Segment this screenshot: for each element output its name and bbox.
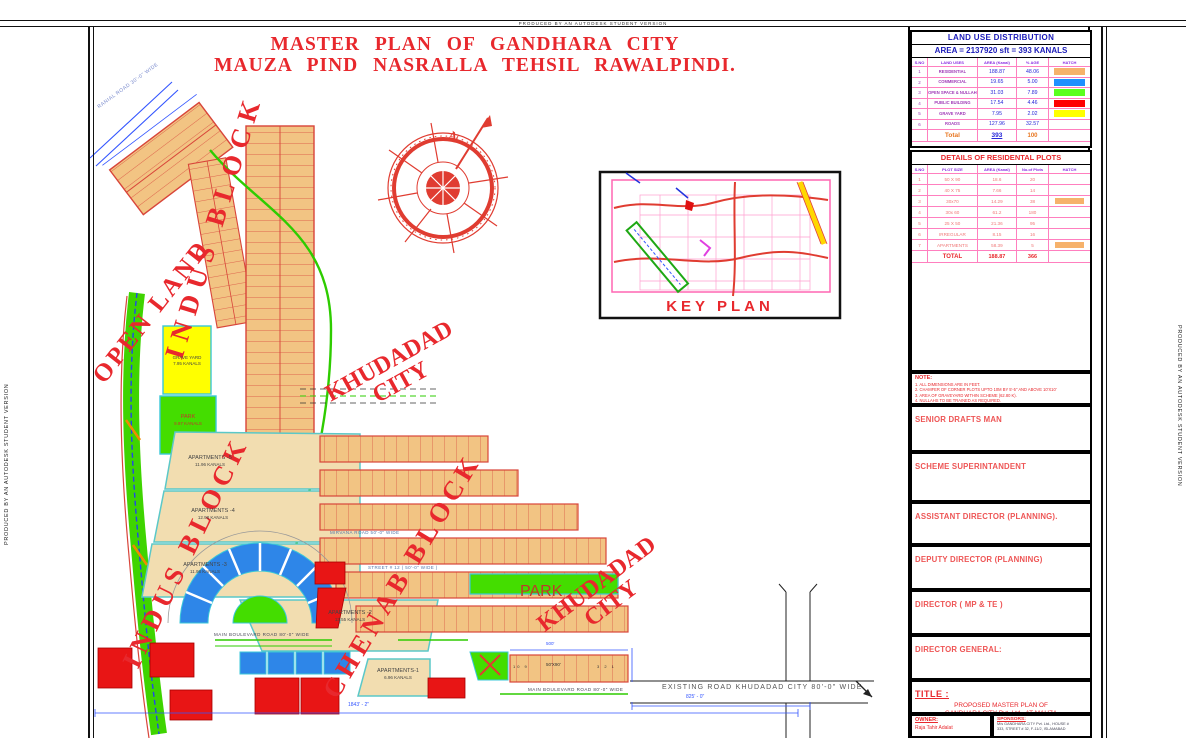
- plots-row: 7 APARTMENTS 58.39 5: [912, 240, 1090, 251]
- cell: COMMERCIAL: [928, 78, 978, 88]
- sheet-border-left-outer: [88, 27, 90, 738]
- plots-row: 3 30x70 14.29 38: [912, 196, 1090, 207]
- cell: 16: [1017, 229, 1049, 239]
- residential-plots-table: DETAILS OF RESIDENTAL PLOTS S.NO PLOT SI…: [910, 150, 1092, 372]
- autodesk-banner-right: PRODUCED BY AN AUTODESK STUDENT VERSION: [1176, 325, 1182, 486]
- cell: 48.06: [1017, 67, 1049, 77]
- cell: [1049, 207, 1090, 217]
- col-land-uses: LAND USES: [928, 58, 978, 66]
- indus-plot-column: [246, 126, 314, 482]
- cell: 3: [912, 196, 928, 206]
- cell: 17.54: [978, 99, 1017, 109]
- dimension-825: 825' - 0": [686, 694, 704, 700]
- land-use-header-row: S.NO LAND USES AREA (Kanal) % AGE HATCH: [912, 58, 1090, 67]
- apartments-4-name: APARTMENTS -4: [158, 508, 268, 515]
- cell: 58.39: [978, 240, 1017, 250]
- plot-size-label: 50'X90': [546, 662, 561, 667]
- owner-label: OWNER:: [915, 717, 987, 723]
- key-plan-label: KEY PLAN: [647, 298, 793, 315]
- plan-title-line1: MASTER PLAN OF GANDHARA CITY: [170, 34, 780, 55]
- cell: 180: [1017, 207, 1049, 217]
- cell: 188.87: [978, 251, 1017, 262]
- key-plan-inset: [600, 172, 840, 318]
- cell: 95: [1017, 218, 1049, 228]
- cell: [1049, 240, 1090, 250]
- apartments-3-area: 11.98 KANALS: [150, 569, 260, 575]
- cell: [1049, 99, 1090, 109]
- land-use-row: 5 GRAVE YARD 7.95 2.02: [912, 109, 1090, 120]
- cell: [1049, 109, 1090, 119]
- cell: PUBLIC BUILDING: [928, 99, 978, 109]
- sponsors-box: SPONSORS: M/s GANDHARA CITY Pvt. Ltd., H…: [992, 714, 1092, 738]
- plots-row: 2 40 X 75 7.66 14: [912, 185, 1090, 196]
- apartments-4-label: APARTMENTS -4 12.98 KANALS: [158, 508, 268, 521]
- sheet-border-right-inner: [1101, 27, 1103, 738]
- top-sheet-border: PRODUCED BY AN AUTODESK STUDENT VERSION: [0, 20, 1186, 27]
- plan-title-line2: MAUZA PIND NASRALLA TEHSIL RAWALPINDI.: [170, 55, 780, 76]
- cell: RESIDENTIAL: [928, 67, 978, 77]
- plots-row: 5 25 X 50 21.36 95: [912, 218, 1090, 229]
- cell: 31.03: [978, 88, 1017, 98]
- apartments-1-label: APARTMENTS-1 6.96 KANALS: [360, 668, 436, 681]
- dimension-1843: 1843' - 2": [348, 702, 369, 708]
- cell: 6: [912, 229, 928, 239]
- cell: OPEN SPACE & NULLAH: [928, 88, 978, 98]
- land-use-total-row: Total 393 100: [912, 130, 1090, 142]
- land-use-row: 1 RESIDENTIAL 188.87 48.06: [912, 67, 1090, 78]
- cell: TOTAL: [928, 251, 978, 262]
- cell: 40 X 75: [928, 185, 978, 195]
- land-use-row: 6 ROADS 127.96 32.57: [912, 120, 1090, 131]
- title-block: TITLE : PROPOSED MASTER PLAN OF GANDHARA…: [910, 680, 1092, 714]
- note-box: NOTE: 1. ALL DIMENSIONS ARE IN FEET. 2. …: [910, 372, 1092, 405]
- col-area: AREA (Kanal): [978, 58, 1017, 66]
- park-area: 9.97 KANALS: [162, 421, 214, 427]
- cell: 38: [1017, 196, 1049, 206]
- plots-row: 1 50 X 90 18.6 20: [912, 174, 1090, 185]
- cell: 127.96: [978, 120, 1017, 130]
- owner-box: OWNER: Raja Tahir Adalat: [910, 714, 992, 738]
- apartments-5-name: APARTMENTS -5: [155, 455, 265, 462]
- plan-title: MASTER PLAN OF GANDHARA CITY MAUZA PIND …: [170, 34, 780, 76]
- hatch-swatch: [1054, 121, 1086, 128]
- land-use-row: 2 COMMERCIAL 19.65 5.00: [912, 78, 1090, 89]
- cell: 7.95: [978, 109, 1017, 119]
- plots-title: DETAILS OF RESIDENTAL PLOTS: [912, 152, 1090, 165]
- hatch-swatch: [1055, 242, 1084, 248]
- cell: 6: [912, 120, 928, 130]
- grave-yard-area: 7.95 KANALS: [164, 361, 210, 367]
- cell: 32.57: [1017, 120, 1049, 130]
- hatch-swatch: [1054, 100, 1086, 107]
- cell: 100: [1017, 130, 1049, 141]
- hatch-swatch: [1054, 89, 1086, 96]
- apartments-2-label: APARTMENTS -2 13.55 KANALS: [295, 610, 405, 623]
- street-12-label: STREET # 12 ( 50'-0" WIDE ): [368, 565, 438, 570]
- cell: 2: [912, 185, 928, 195]
- apartments-3-label: APARTMENTS -3 11.98 KANALS: [150, 562, 260, 575]
- cell: 3: [912, 88, 928, 98]
- col-sno: S.NO: [912, 165, 928, 173]
- cell: 7: [912, 240, 928, 250]
- cell: GRAVE YARD: [928, 109, 978, 119]
- cell: 19.65: [978, 78, 1017, 88]
- hatch-swatch: [1055, 231, 1084, 237]
- owner-name: Raja Tahir Adalat: [915, 725, 987, 731]
- apartments-3-name: APARTMENTS -3: [150, 562, 260, 569]
- cell: [1049, 251, 1090, 262]
- cell: [1049, 196, 1090, 206]
- cell: [1049, 185, 1090, 195]
- cell: [1049, 78, 1090, 88]
- apartments-2-name: APARTMENTS -2: [295, 610, 405, 617]
- cell: 5.00: [1017, 78, 1049, 88]
- cell: 4: [912, 99, 928, 109]
- col-pct: % AGE: [1017, 58, 1049, 66]
- signature-label: SENIOR DRAFTS MAN: [915, 415, 1002, 424]
- plot-numbers-right: 3 2 1: [597, 664, 616, 669]
- cell: 20: [1017, 174, 1049, 184]
- title-block-panel: LAND USE DISTRIBUTION AREA = 2137920 sft…: [908, 27, 1090, 738]
- cell: 4.46: [1017, 99, 1049, 109]
- cell: ROADS: [928, 120, 978, 130]
- park-strip-label: PARK: [520, 582, 562, 602]
- signature-label: DIRECTOR GENERAL:: [915, 645, 1002, 654]
- col-count: No.of Plots: [1017, 165, 1049, 173]
- note-line: 4. NULLAHS TO BE TRAINED AS REQUIRED.: [915, 398, 1087, 404]
- cell: 14: [1017, 185, 1049, 195]
- col-plot-size: PLOT SIZE: [928, 165, 978, 173]
- cell: 393: [978, 130, 1017, 141]
- hatch-swatch: [1054, 110, 1086, 117]
- signature-box-deputy-director: DEPUTY DIRECTOR (PLANNING): [910, 545, 1092, 590]
- compass-rose: [378, 115, 508, 253]
- existing-roads: [630, 584, 874, 738]
- cell: 30x 60: [928, 207, 978, 217]
- signature-label: DEPUTY DIRECTOR (PLANNING): [915, 555, 1043, 564]
- cell: 5: [912, 109, 928, 119]
- main-boulevard-label-1: MAIN BOULEVARD ROAD 80'-0" WIDE: [214, 632, 309, 637]
- cell: 1: [912, 174, 928, 184]
- plots-row: 6 IRREGULAR 8.15 16: [912, 229, 1090, 240]
- hatch-swatch: [1055, 209, 1084, 215]
- title-block-label: TITLE :: [915, 689, 949, 699]
- cell: 4: [912, 207, 928, 217]
- autodesk-banner-left: PRODUCED BY AN AUTODESK STUDENT VERSION: [4, 384, 10, 545]
- park-label: PARK 9.97 KANALS: [162, 414, 214, 427]
- cell: 2.02: [1017, 109, 1049, 119]
- park-name: PARK: [162, 414, 214, 421]
- cell: [1049, 88, 1090, 98]
- col-hatch: HATCH: [1049, 165, 1090, 173]
- cell: 5: [912, 218, 928, 228]
- cell: APARTMENTS: [928, 240, 978, 250]
- cell: [912, 251, 928, 262]
- signature-label: ASSISTANT DIRECTOR (PLANNING).: [915, 512, 1058, 521]
- cell: [1049, 120, 1090, 130]
- hatch-swatch: [1055, 220, 1084, 226]
- hatch-swatch: [1055, 187, 1084, 193]
- signature-label: DIRECTOR ( MP & TE ): [915, 600, 1003, 609]
- cell: 14.29: [978, 196, 1017, 206]
- existing-road-label: EXISTING ROAD KHUDADAD CITY 80'-0" WIDE: [662, 684, 863, 691]
- plots-row: 4 30x 60 61.2 180: [912, 207, 1090, 218]
- hatch-swatch: [1054, 79, 1086, 86]
- cell: 2: [912, 78, 928, 88]
- signature-box-senior-draftsman: SENIOR DRAFTS MAN: [910, 405, 1092, 452]
- signature-label: SCHEME SUPERINTANDENT: [915, 462, 1026, 471]
- apartments-2-area: 13.55 KANALS: [295, 617, 405, 623]
- signature-box-director-general: DIRECTOR GENERAL:: [910, 635, 1092, 680]
- cell: 8.15: [978, 229, 1017, 239]
- dimension-500: 500': [546, 641, 554, 646]
- land-use-row: 3 OPEN SPACE & NULLAH 31.03 7.89: [912, 88, 1090, 99]
- apartments-1-area: 6.96 KANALS: [360, 675, 436, 681]
- cell: IRREGULAR: [928, 229, 978, 239]
- cell: 21.36: [978, 218, 1017, 228]
- mirvana-road-label: MIRVANA ROAD 50'-0" WIDE: [330, 530, 399, 535]
- green-wedge: [470, 652, 508, 680]
- hatch-swatch: [1055, 176, 1084, 182]
- sheet-border-left-inner: [93, 27, 95, 738]
- cell: 7.89: [1017, 88, 1049, 98]
- apartments-4-area: 12.98 KANALS: [158, 515, 268, 521]
- land-use-table: LAND USE DISTRIBUTION AREA = 2137920 sft…: [910, 30, 1092, 148]
- cell: 188.87: [978, 67, 1017, 77]
- signature-box-assistant-director: ASSISTANT DIRECTOR (PLANNING).: [910, 502, 1092, 545]
- hatch-swatch: [1054, 68, 1086, 75]
- cell: 18.6: [978, 174, 1017, 184]
- land-use-row: 4 PUBLIC BUILDING 17.54 4.46: [912, 99, 1090, 110]
- col-sno: S.NO: [912, 58, 928, 66]
- cell: [1049, 174, 1090, 184]
- signature-box-scheme-superintendent: SCHEME SUPERINTANDENT: [910, 452, 1092, 502]
- sheet-border-right-outer: [1106, 27, 1108, 738]
- cell: [1049, 67, 1090, 77]
- apartments-5-label: APARTMENTS -5 11.96 KANALS: [155, 455, 265, 468]
- autodesk-banner-top: PRODUCED BY AN AUTODESK STUDENT VERSION: [519, 21, 668, 26]
- cell: [1049, 229, 1090, 239]
- col-area: AREA (Kanal): [978, 165, 1017, 173]
- cell: [1049, 218, 1090, 228]
- apartments-1-name: APARTMENTS-1: [360, 668, 436, 675]
- cell: 25 X 50: [928, 218, 978, 228]
- title-block-line: PROPOSED MASTER PLAN OF: [915, 702, 1087, 710]
- cell: 7.66: [978, 185, 1017, 195]
- cell: 30x70: [928, 196, 978, 206]
- plots-total-row: TOTAL 188.87 366: [912, 251, 1090, 263]
- drawing-sheet: { "edge": { "autodesk": "PRODUCED BY AN …: [0, 0, 1186, 738]
- col-hatch: HATCH: [1049, 58, 1090, 66]
- cell: 61.2: [978, 207, 1017, 217]
- land-use-title: LAND USE DISTRIBUTION: [912, 32, 1090, 45]
- land-use-area-line: AREA = 2137920 sft = 393 KANALS: [912, 45, 1090, 58]
- cell: 50 X 90: [928, 174, 978, 184]
- grave-yard-label: GRAVE YARD 7.95 KANALS: [164, 355, 210, 366]
- cell: [912, 130, 928, 141]
- cell: 5: [1017, 240, 1049, 250]
- cell: 366: [1017, 251, 1049, 262]
- main-boulevard-label-2: MAIN BOULEVARD ROAD 80'-0" WIDE: [528, 687, 623, 692]
- hatch-swatch: [1055, 198, 1084, 204]
- cell: 1: [912, 67, 928, 77]
- apartments-5-area: 11.96 KANALS: [155, 462, 265, 468]
- plots-header-row: S.NO PLOT SIZE AREA (Kanal) No.of Plots …: [912, 165, 1090, 174]
- plot-numbers-left: 10 9: [513, 664, 529, 669]
- sponsors-line: 333, STREET # 32, F-11/2, ISLAMABAD: [997, 727, 1087, 732]
- signature-box-director-mp-te: DIRECTOR ( MP & TE ): [910, 590, 1092, 635]
- cell: [1049, 130, 1090, 141]
- cell: Total: [928, 130, 978, 141]
